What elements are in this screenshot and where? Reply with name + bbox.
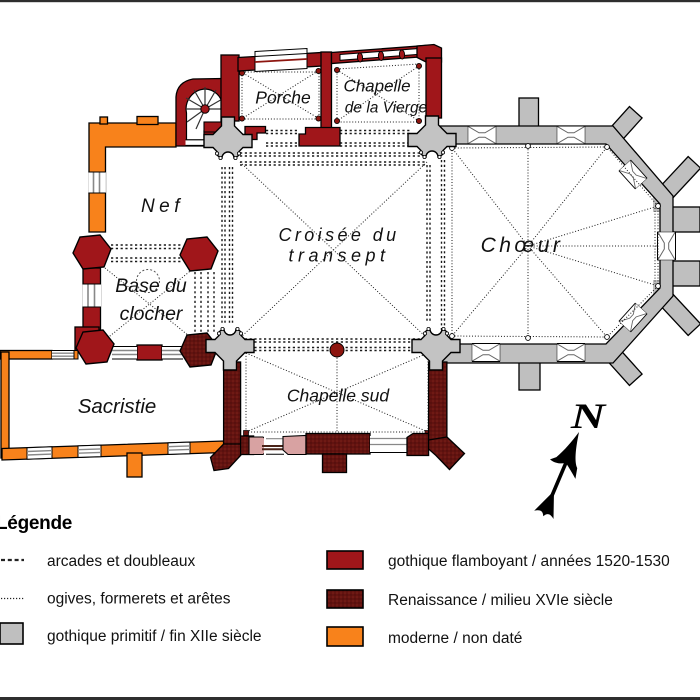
svg-text:ogives, formerets et arêtes: ogives, formerets et arêtes (47, 591, 231, 608)
svg-text:Base du: Base du (115, 275, 187, 297)
svg-text:Chapelle: Chapelle (343, 77, 410, 96)
svg-text:Légende: Légende (0, 513, 72, 534)
svg-text:arcades et doubleaux: arcades et doubleaux (47, 553, 195, 570)
svg-text:transept: transept (288, 246, 389, 266)
svg-text:gothique flamboyant / années 1: gothique flamboyant / années 1520-1530 (388, 553, 670, 570)
svg-text:gothique primitif / fin XIIe s: gothique primitif / fin XIIe siècle (47, 628, 262, 645)
svg-text:clocher: clocher (120, 303, 184, 325)
svg-text:de la Vierge: de la Vierge (345, 100, 428, 117)
svg-text:Renaissance / milieu XVIe sièc: Renaissance / milieu XVIe siècle (388, 592, 613, 609)
svg-text:Chœur: Chœur (481, 234, 564, 257)
svg-text:Chapelle sud: Chapelle sud (287, 386, 390, 406)
svg-text:Sacristie: Sacristie (78, 395, 157, 418)
svg-text:moderne / non daté: moderne / non daté (388, 630, 522, 647)
svg-text:Croisée du: Croisée du (278, 225, 399, 245)
svg-text:N: N (570, 396, 607, 436)
svg-text:Porche: Porche (255, 88, 311, 108)
svg-text:Nef: Nef (141, 196, 184, 217)
